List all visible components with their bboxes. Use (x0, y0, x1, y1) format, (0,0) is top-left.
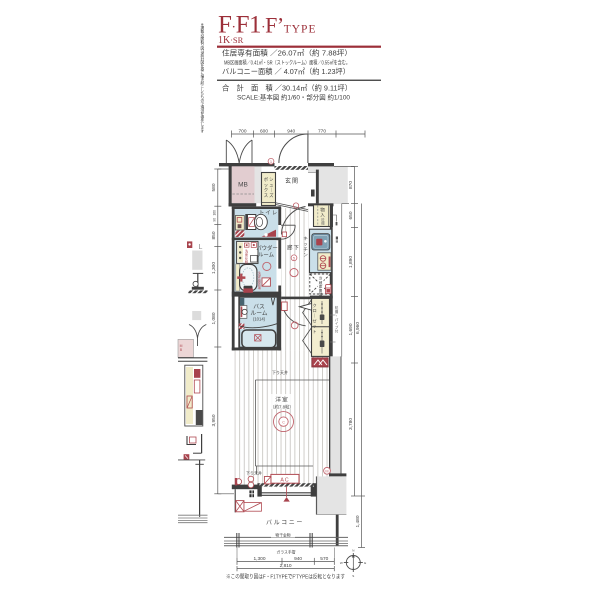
svg-text:｜: ｜ (269, 188, 273, 193)
svg-text:ボ: ボ (264, 176, 269, 182)
svg-text:3,950: 3,950 (211, 414, 217, 426)
svg-text:940: 940 (287, 128, 295, 134)
svg-text:物干金物: 物干金物 (275, 532, 290, 537)
svg-text:ス: ス (264, 193, 268, 198)
svg-text:住居専有面積 ／26.07㎡（約 7.88坪）: 住居専有面積 ／26.07㎡（約 7.88坪） (222, 49, 352, 58)
svg-text:下り天井: 下り天井 (272, 369, 288, 375)
svg-text:AC: AC (280, 477, 289, 483)
svg-text:SCALE:基本図 約1/60・部分図 約1/100: SCALE:基本図 約1/60・部分図 約1/100 (237, 93, 350, 102)
svg-text:1,480: 1,480 (355, 515, 361, 527)
svg-text:バルコニー面積 ／ 4.07㎡（約 1.23坪）: バルコニー面積 ／ 4.07㎡（約 1.23坪） (222, 67, 350, 76)
svg-text:玄関: 玄関 (285, 177, 299, 185)
svg-text:ュ: ュ (269, 182, 273, 187)
svg-text:ルーム: ルーム (258, 252, 275, 259)
svg-text:ッ: ッ (264, 182, 268, 187)
svg-text:1,300: 1,300 (211, 262, 217, 274)
svg-text:600: 600 (260, 128, 268, 134)
svg-text:棚: 棚 (321, 221, 324, 226)
svg-text:160: 160 (213, 210, 217, 216)
svg-text:シ: シ (269, 177, 273, 182)
svg-text:570: 570 (320, 556, 328, 562)
svg-text:770: 770 (318, 128, 326, 134)
svg-text:1,890: 1,890 (348, 256, 354, 268)
svg-text:700: 700 (238, 128, 246, 134)
svg-text:洋室: 洋室 (275, 396, 289, 404)
svg-text:M: M (325, 470, 328, 474)
svg-text:ト: ト (312, 329, 316, 334)
svg-text:ッ: ッ (303, 242, 308, 247)
svg-text:廊下: 廊下 (287, 244, 300, 252)
svg-text:1,300: 1,300 (253, 556, 265, 562)
svg-text:1K·SR: 1K·SR (218, 35, 244, 46)
svg-text:S: S (352, 574, 354, 578)
svg-text:870: 870 (348, 181, 354, 189)
svg-text:合 計 面 積 ／30.14㎡（約 9.11坪）: 合 計 面 積 ／30.14㎡（約 9.11坪） (222, 84, 352, 93)
svg-text:ン: ン (303, 253, 308, 258)
svg-text:6,960: 6,960 (355, 322, 361, 334)
svg-text:650: 650 (348, 211, 354, 219)
svg-text:※この間取り図はF・F1TYPEでF’TYPEは反転となりま: ※この間取り図はF・F1TYPEでF’TYPEは反転となります (226, 573, 345, 581)
svg-text:940: 940 (294, 556, 302, 562)
svg-text:90: 90 (213, 218, 217, 222)
svg-text:(1014): (1014) (253, 317, 266, 322)
svg-text:MB区画面積／0.41㎡・SR（ストックルーム）面積／0.5: MB区画面積／0.41㎡・SR（ストックルーム）面積／0.55㎡を含む。 (224, 59, 350, 67)
svg-text:ガラス手摺: ガラス手摺 (277, 550, 296, 555)
svg-text:ゼ: ゼ (312, 317, 316, 323)
svg-text:C: C (282, 420, 285, 424)
svg-text:L: L (199, 244, 203, 251)
svg-text:850: 850 (211, 231, 217, 239)
svg-text:下り天井: 下り天井 (246, 469, 262, 475)
svg-text:1,080: 1,080 (211, 312, 217, 324)
svg-text:バルコニー: バルコニー (266, 520, 304, 527)
svg-text:W: W (340, 561, 343, 565)
svg-text:3,780: 3,780 (348, 418, 354, 430)
svg-text:2,810: 2,810 (280, 563, 292, 569)
svg-text:N: N (352, 549, 354, 553)
svg-text:パウダー: パウダー (256, 244, 278, 252)
svg-text:1,690: 1,690 (348, 323, 354, 335)
svg-text:す: す (200, 129, 204, 134)
svg-text:E: E (364, 561, 366, 565)
svg-text:MB: MB (238, 182, 248, 189)
svg-text:（約7.8帖）: （約7.8帖） (270, 403, 294, 410)
svg-text:ズ: ズ (269, 192, 274, 199)
svg-text:入: 入 (320, 213, 325, 218)
svg-text:580: 580 (211, 183, 217, 191)
svg-text:キ: キ (303, 236, 308, 241)
svg-text:バス: バス (253, 304, 265, 311)
svg-text:チ: チ (303, 247, 308, 252)
